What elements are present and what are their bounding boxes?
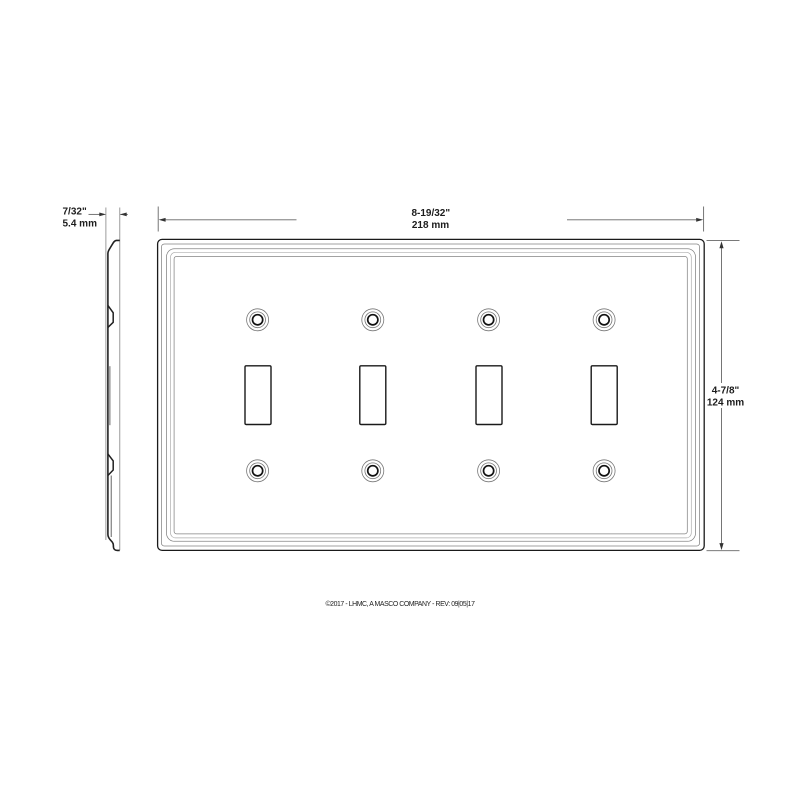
svg-text:7/32": 7/32": [63, 207, 87, 218]
svg-text:©2017 - LHMC, A MASCO COMPANY: ©2017 - LHMC, A MASCO COMPANY - REV: 09|…: [325, 600, 475, 608]
svg-text:4-7/8": 4-7/8": [712, 386, 740, 397]
svg-text:8-19/32": 8-19/32": [411, 208, 450, 219]
svg-text:5.4 mm: 5.4 mm: [63, 219, 98, 230]
svg-text:218 mm: 218 mm: [412, 220, 449, 231]
svg-text:124 mm: 124 mm: [707, 398, 744, 409]
